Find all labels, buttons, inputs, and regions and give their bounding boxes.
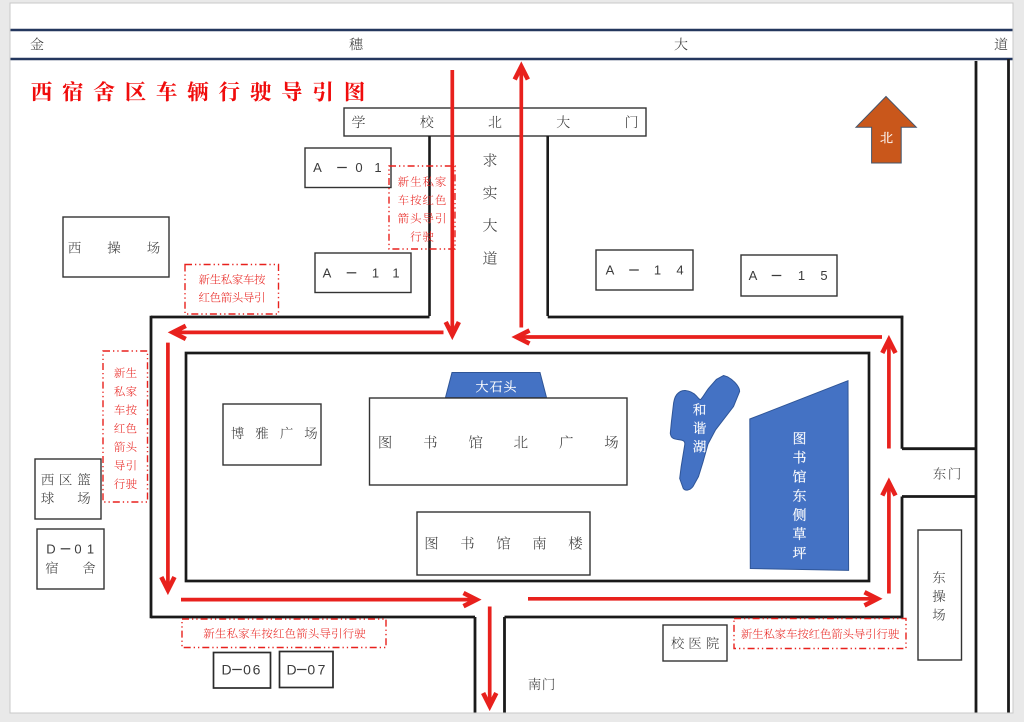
svg-text:D: D — [221, 661, 231, 677]
svg-text:A: A — [606, 263, 615, 278]
svg-text:D: D — [286, 661, 296, 677]
svg-text:A: A — [323, 265, 332, 280]
svg-text:1: 1 — [374, 160, 381, 175]
svg-text:5: 5 — [820, 268, 827, 283]
svg-text:0: 0 — [355, 160, 362, 175]
svg-text:A: A — [749, 268, 758, 283]
svg-text:0: 0 — [243, 661, 251, 677]
svg-text:0: 0 — [307, 661, 315, 677]
svg-text:1: 1 — [372, 265, 379, 280]
svg-text:6: 6 — [253, 661, 261, 677]
svg-text:1: 1 — [87, 541, 94, 556]
svg-text:7: 7 — [318, 661, 326, 677]
svg-text:0: 0 — [74, 541, 81, 556]
svg-text:A: A — [313, 160, 322, 175]
svg-text:1: 1 — [392, 265, 399, 280]
svg-text:1: 1 — [798, 268, 805, 283]
svg-text:D: D — [46, 541, 55, 556]
svg-text:4: 4 — [676, 263, 683, 278]
svg-text:1: 1 — [654, 263, 661, 278]
